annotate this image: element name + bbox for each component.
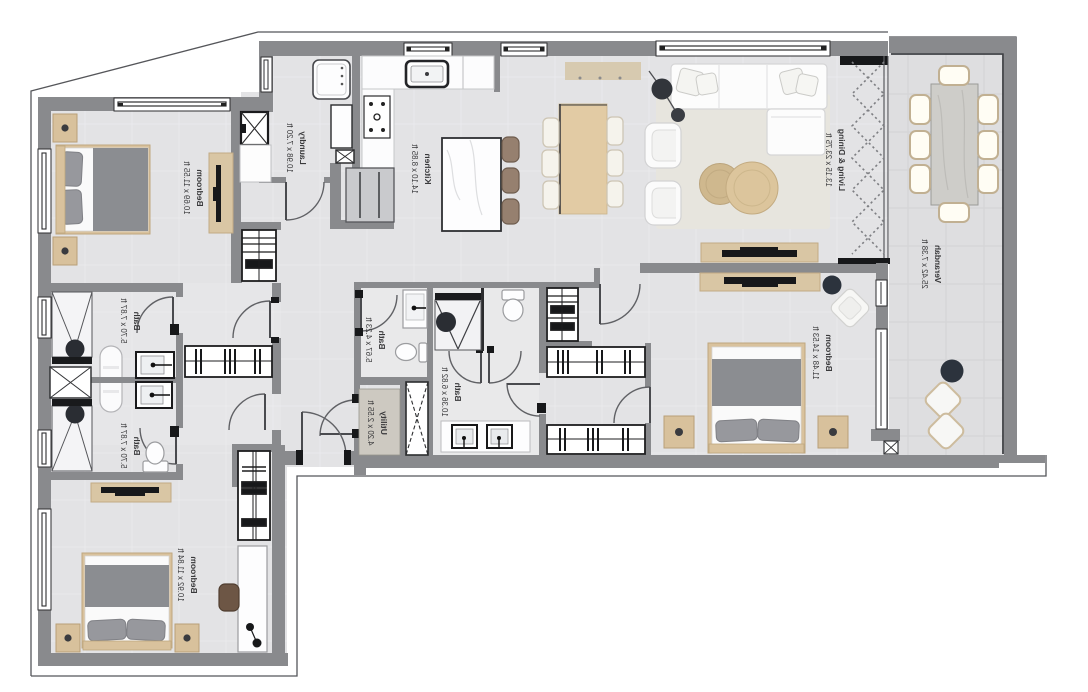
svg-text:Bath: Bath: [132, 312, 142, 331]
svg-text:14.10 x 8.85 ft: 14.10 x 8.85 ft: [410, 143, 419, 193]
svg-text:25.42 x 7.38 ft: 25.42 x 7.38 ft: [920, 238, 929, 288]
svg-text:Bedroom: Bedroom: [189, 556, 199, 594]
svg-text:Laundry: Laundry: [298, 131, 308, 165]
svg-text:Kitchen: Kitchen: [423, 153, 433, 184]
svg-text:5.70 x 7.87 ft: 5.70 x 7.87 ft: [119, 298, 128, 344]
svg-text:13.15 x 23.75 ft: 13.15 x 23.75 ft: [824, 132, 833, 187]
svg-text:11.48 x 14.53 ft: 11.48 x 14.53 ft: [811, 326, 820, 380]
svg-text:5.67 x 4.23 ft: 5.67 x 4.23 ft: [364, 317, 373, 363]
svg-text:4.20 x 2.55 ft: 4.20 x 2.55 ft: [366, 400, 375, 446]
svg-text:Bedroom: Bedroom: [195, 169, 205, 207]
svg-text:Living & Dining: Living & Dining: [837, 129, 847, 191]
svg-text:Bath: Bath: [132, 437, 142, 456]
svg-text:10.98 x 7.20 ft: 10.98 x 7.20 ft: [285, 122, 294, 172]
svg-text:Verandah: Verandah: [933, 245, 943, 283]
svg-text:5.70 x 7.87 ft: 5.70 x 7.87 ft: [119, 423, 128, 469]
svg-text:Utility: Utility: [379, 411, 389, 435]
svg-text:Bedroom: Bedroom: [824, 334, 834, 372]
svg-text:10.36 x 6.82 ft: 10.36 x 6.82 ft: [440, 366, 449, 416]
svg-text:Bath: Bath: [377, 331, 387, 350]
svg-text:Bath: Bath: [453, 383, 463, 402]
svg-text:10.92 x 11.84 ft: 10.92 x 11.84 ft: [176, 548, 185, 602]
svg-text:10.69 x 11.55 ft: 10.69 x 11.55 ft: [182, 161, 191, 215]
